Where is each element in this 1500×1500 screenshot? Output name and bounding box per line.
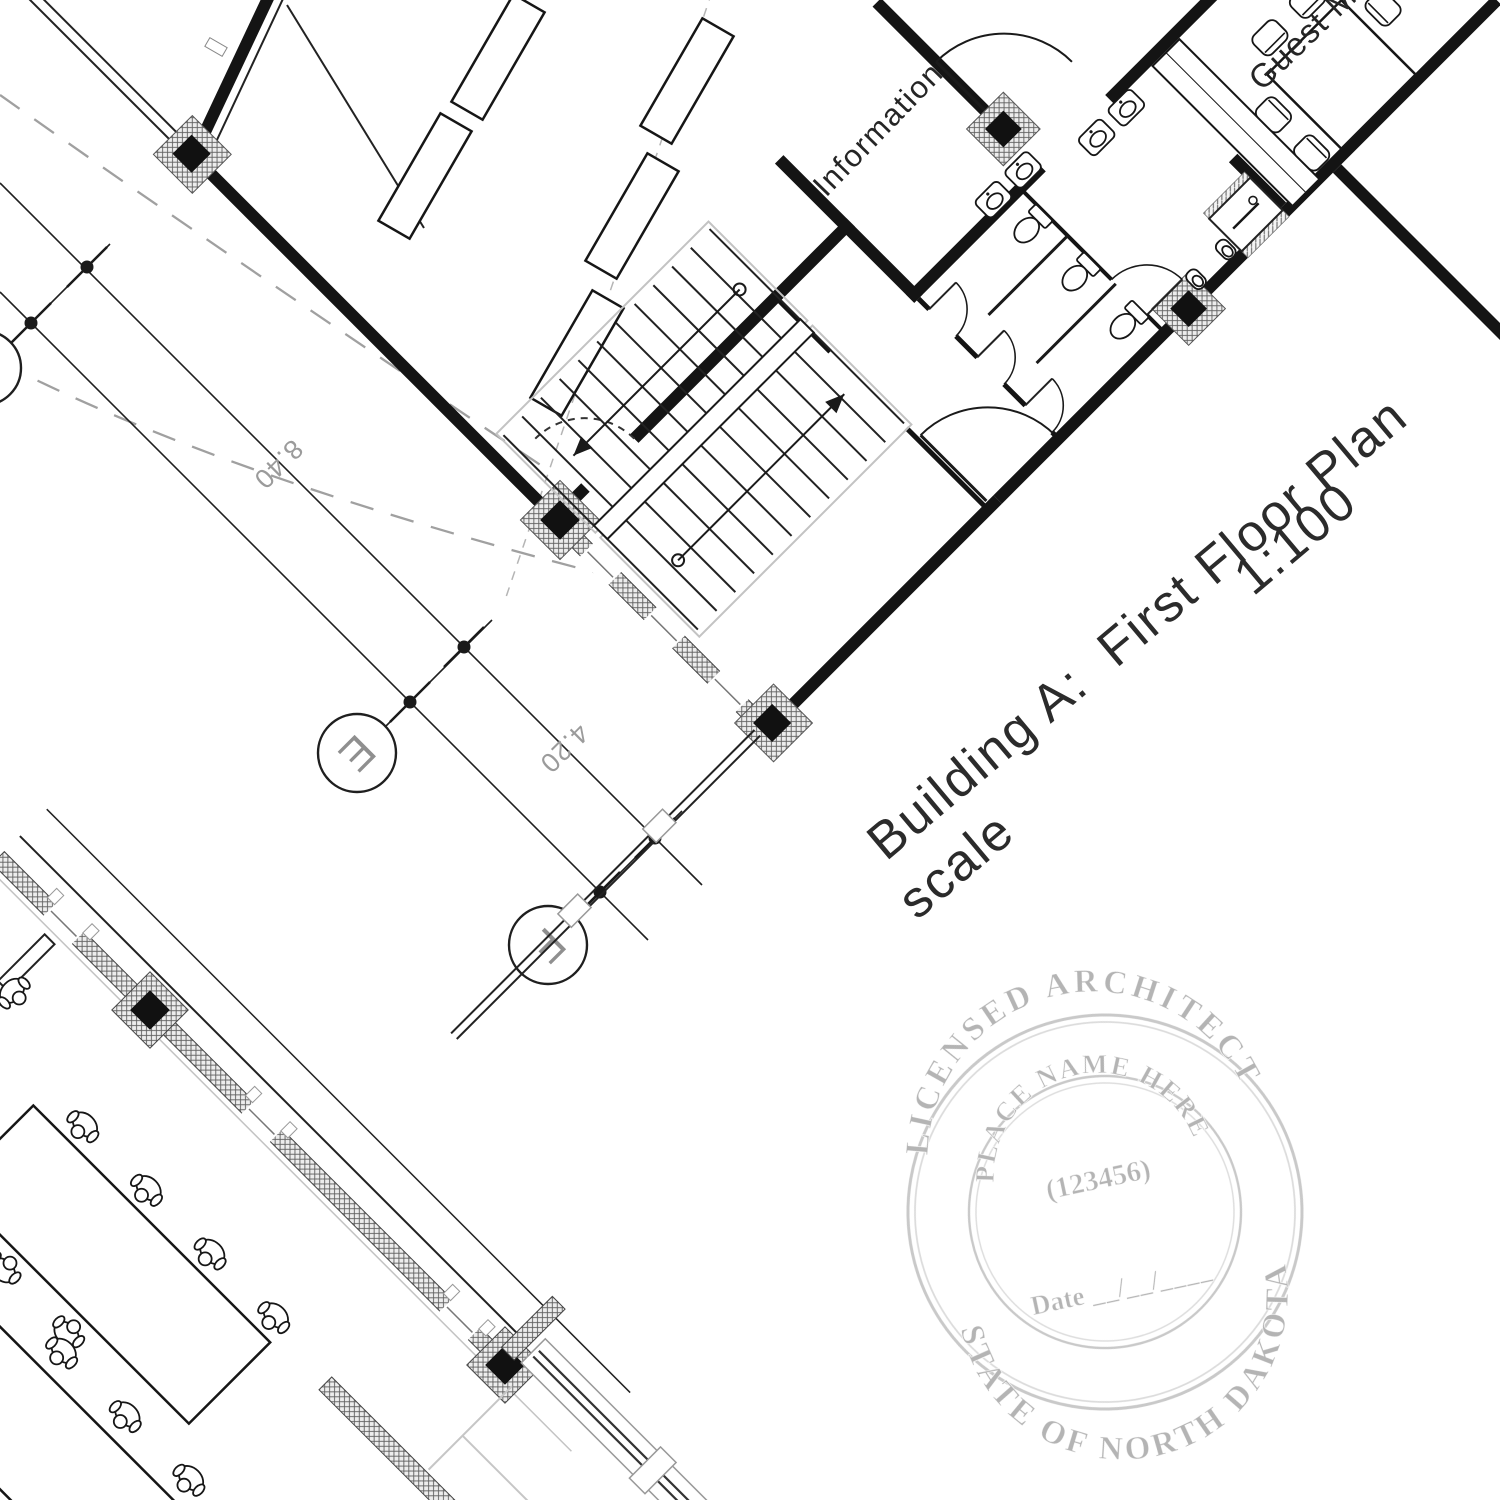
floor-plan-sheet: E F 8.40 4.20 [0,0,1500,1500]
architectural-floor-plan: E F 8.40 4.20 [0,0,1500,1500]
grid-node-dot [458,641,471,654]
grid-node-dot [404,696,417,709]
grid-node-dot [81,261,94,274]
grid-node-dot [25,317,38,330]
